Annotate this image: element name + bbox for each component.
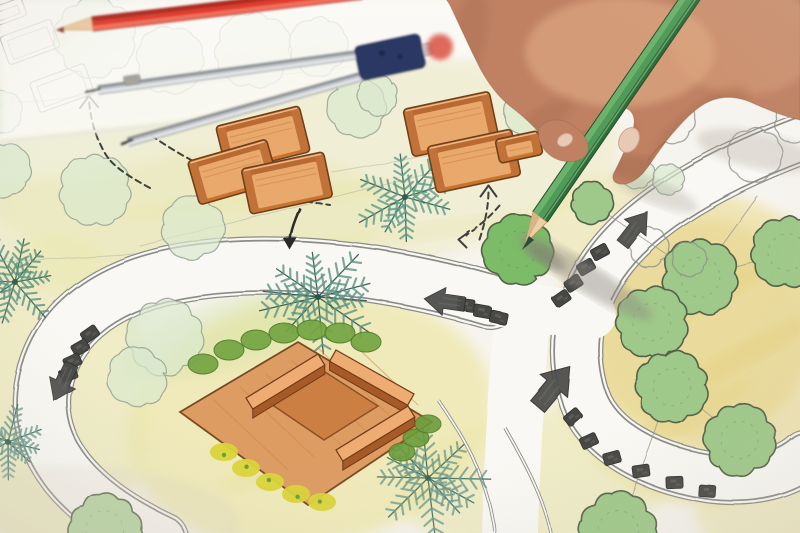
photo-of-landscape-plan: Photograph: a hand holding a green color… xyxy=(0,0,800,533)
scene-canvas xyxy=(0,0,800,533)
vignette xyxy=(0,0,800,533)
photo-vignette xyxy=(0,0,800,533)
